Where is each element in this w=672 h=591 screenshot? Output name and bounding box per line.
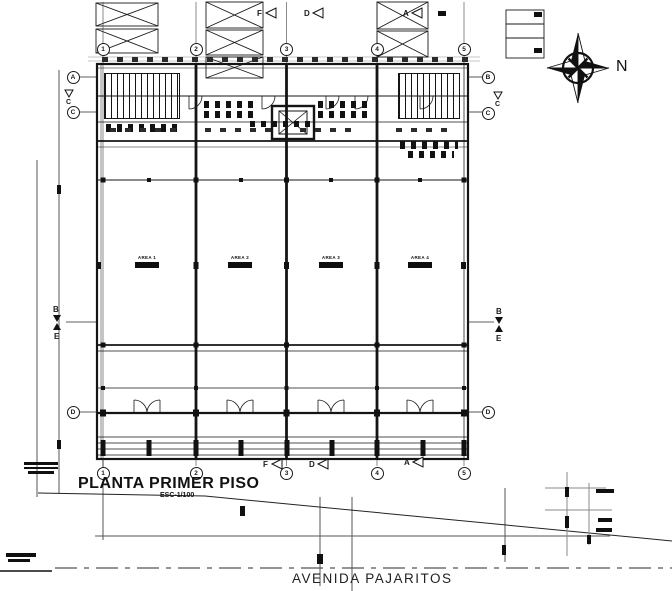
section-letter-a-top: A (403, 9, 409, 18)
annotation-bar (596, 528, 612, 532)
annotation-bar (24, 462, 58, 465)
grid-bubble-top-4: 4 (371, 43, 384, 56)
survey-tick (565, 516, 569, 528)
north-label: N (616, 59, 628, 75)
dimension-row (102, 57, 468, 62)
compass-icon (547, 33, 609, 103)
annotation-bar (596, 489, 614, 493)
elevation-label-c-left: C (66, 99, 71, 107)
grid-bubble-top-2: 2 (190, 43, 203, 56)
room-label-3: AREA 3 (307, 255, 355, 268)
cut-label-b-right: B (496, 307, 502, 316)
floor-plan-sheet: 1 2 3 4 5 1 2 3 4 5 A C D B C D C C F D … (0, 0, 672, 591)
plan-linework (0, 0, 672, 591)
survey-tick (534, 12, 542, 17)
section-letter-d-top: D (304, 9, 310, 18)
section-letter-a-bottom: A (404, 458, 410, 467)
elevation-label-c-right: C (495, 101, 500, 109)
grid-bubble-bottom-5: 5 (458, 467, 471, 480)
grid-bubble-top-5: 5 (458, 43, 471, 56)
room-label-1: AREA 1 (123, 255, 171, 268)
grid-bubble-row-d-left: D (67, 406, 80, 419)
annotation-bar (8, 559, 30, 562)
grid-bubble-row-d-right: D (482, 406, 495, 419)
dimension-row (300, 128, 360, 132)
fixture-row (408, 151, 454, 158)
survey-tick (317, 554, 323, 564)
room-name: AREA 3 (307, 255, 355, 260)
cut-label-e-left: E (54, 332, 59, 341)
room-name: AREA 1 (123, 255, 171, 260)
grid-bubble-bottom-4: 4 (371, 467, 384, 480)
survey-tick (57, 440, 61, 449)
survey-tick (502, 545, 506, 555)
level-badge (319, 262, 343, 268)
annotation-bar (598, 518, 612, 522)
drawing-scale: ESC-1/100 (160, 492, 194, 500)
level-badge (408, 262, 432, 268)
section-letter-f-bottom: F (263, 460, 268, 469)
grid-bubble-top-1: 1 (97, 43, 110, 56)
level-badge (135, 262, 159, 268)
survey-tick (240, 506, 245, 516)
cut-markers (53, 315, 503, 332)
survey-tick (57, 185, 61, 194)
dimension-row (205, 128, 271, 132)
dimension-row (110, 128, 176, 132)
grid-bubble-row-a-left: A (67, 71, 80, 84)
room-label-4: AREA 4 (396, 255, 444, 268)
fixture-row (318, 101, 370, 108)
level-badge (228, 262, 252, 268)
survey-tick (438, 11, 446, 16)
section-letter-f-top: F (257, 9, 262, 18)
grid-bubble-row-b-right: B (482, 71, 495, 84)
room-name: AREA 4 (396, 255, 444, 260)
drawing-title: PLANTA PRIMER PISO (78, 476, 259, 492)
cut-label-b-left: B (53, 305, 59, 314)
grid-bubble-top-3: 3 (280, 43, 293, 56)
cut-label-e-right: E (496, 334, 501, 343)
fixture-row (204, 101, 258, 108)
fixture-row (204, 111, 258, 118)
section-letter-d-bottom: D (309, 460, 315, 469)
survey-tick (534, 48, 542, 53)
door-swings (134, 96, 433, 413)
annotation-bar (28, 471, 54, 474)
grid-bubble-bottom-3: 3 (280, 467, 293, 480)
survey-tick (565, 487, 569, 497)
fixture-row (400, 141, 458, 149)
room-name: AREA 2 (216, 255, 264, 260)
street-name: AVENIDA PAJARITOS (292, 571, 453, 586)
grid-bubble-row-c-right: C (482, 107, 495, 120)
annotation-bar (6, 553, 36, 557)
grid-bubble-row-c-left: C (67, 106, 80, 119)
dimension-row (396, 128, 456, 132)
annotation-bar (24, 467, 58, 470)
fixture-row (250, 121, 310, 127)
fixture-row (318, 111, 370, 118)
staircase-right (398, 73, 460, 119)
staircase-left (104, 73, 180, 119)
grid-lines (103, 2, 464, 466)
columns (97, 178, 467, 457)
room-label-2: AREA 2 (216, 255, 264, 268)
survey-tick (587, 535, 591, 544)
